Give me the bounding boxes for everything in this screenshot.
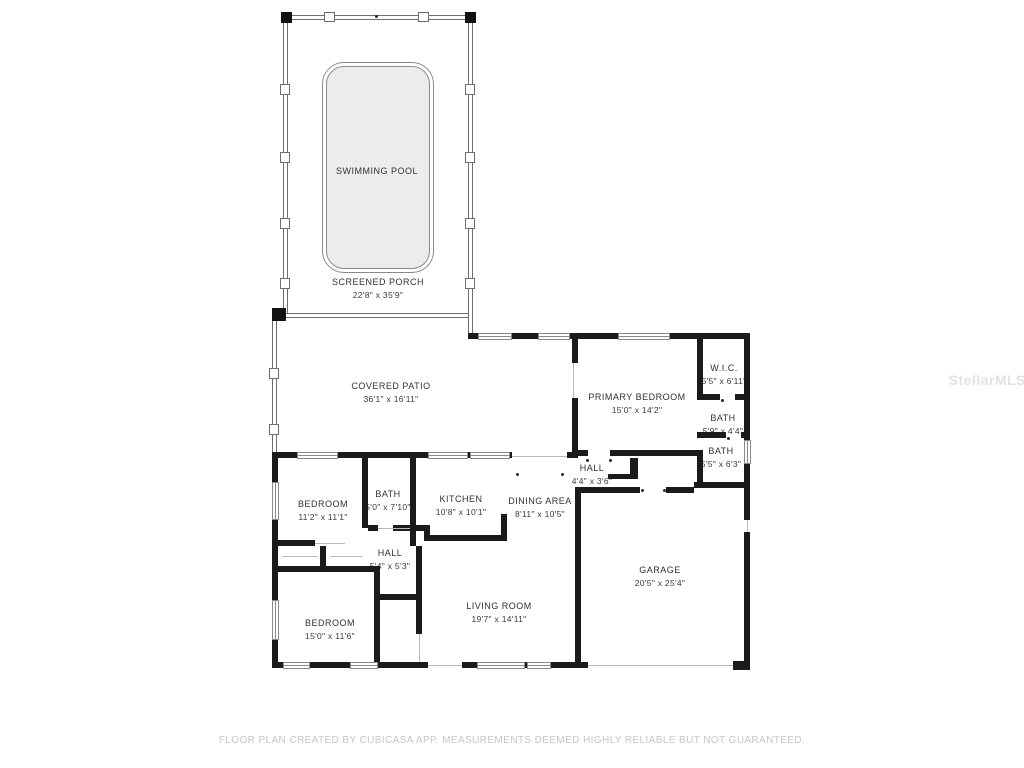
room-label-covered-patio: COVERED PATIO 36'1" x 16'11" — [321, 381, 461, 404]
screen-post — [269, 368, 279, 379]
wall — [374, 566, 380, 668]
wall — [380, 594, 422, 600]
screen-post — [280, 278, 290, 289]
window — [350, 662, 378, 669]
porch-screen-wall-top — [283, 15, 473, 20]
patio-slider-door — [573, 363, 574, 398]
dining-patio-opening — [512, 456, 567, 457]
corner-post — [465, 12, 476, 23]
screen-post — [280, 218, 290, 229]
patio-screen-wall-left — [272, 318, 277, 458]
wall — [741, 432, 750, 438]
wall — [572, 450, 588, 456]
corner-post — [281, 12, 292, 23]
mls-watermark: StellarMLS — [949, 372, 1024, 388]
closet-door — [282, 556, 318, 557]
closet-door — [419, 634, 420, 662]
room-label-screened-porch: SCREENED PORCH 22'8" x 35'9" — [308, 277, 448, 300]
marker-dot — [516, 473, 519, 476]
wall — [362, 458, 368, 528]
window — [272, 482, 279, 520]
wall — [501, 514, 507, 541]
room-label-living-room: LIVING ROOM 19'7" x 14'11" — [429, 601, 569, 624]
window — [428, 452, 468, 459]
floor-plan-canvas: SWIMMING POOL SCREENED PORCH 22'8" x 35'… — [0, 0, 1024, 768]
wall — [272, 540, 315, 546]
wall — [272, 566, 374, 572]
window — [527, 662, 551, 669]
screen-post — [465, 218, 475, 229]
porch-screen-wall-bottom — [283, 313, 468, 318]
window — [297, 452, 338, 459]
room-label-wic: W.I.C. 5'5" x 6'11" — [654, 363, 794, 386]
porch-screen-wall-left — [283, 15, 288, 318]
wall — [735, 394, 750, 400]
marker-dot — [721, 399, 724, 402]
room-label-hall-right: HALL 4'4" x 3'6" — [522, 463, 662, 486]
room-label-garage: GARAGE 20'5" x 25'4" — [590, 565, 730, 588]
marker-dot — [586, 459, 589, 462]
window — [618, 333, 670, 340]
marker-dot — [663, 489, 666, 492]
room-label-swimming-pool: SWIMMING POOL — [307, 166, 447, 176]
wall — [697, 432, 726, 438]
wall — [424, 535, 507, 541]
screen-post — [269, 424, 279, 435]
screen-post — [418, 12, 429, 22]
window — [744, 440, 751, 464]
wall — [610, 450, 703, 456]
wall — [572, 398, 578, 456]
wall — [697, 394, 720, 400]
corner-post — [272, 308, 286, 321]
room-label-dining-area: DINING AREA 8'11" x 10'5" — [470, 496, 610, 519]
wall — [744, 333, 750, 520]
bath-door — [378, 528, 410, 529]
window — [272, 600, 279, 640]
room-label-primary-bedroom: PRIMARY BEDROOM 15'0" x 14'2" — [567, 392, 707, 415]
marker-dot — [727, 437, 730, 440]
wall — [368, 525, 378, 531]
wall — [697, 339, 703, 399]
wall — [744, 532, 750, 670]
garage-side-door — [747, 520, 748, 532]
wall — [733, 661, 750, 670]
front-door — [428, 665, 462, 666]
wall — [575, 487, 581, 668]
marker-dot — [561, 473, 564, 476]
window — [538, 333, 570, 340]
window — [478, 333, 512, 340]
marker-dot — [609, 459, 612, 462]
screen-post — [465, 152, 475, 163]
screen-post — [280, 152, 290, 163]
wall — [608, 474, 638, 479]
wall — [416, 546, 422, 634]
garage-door — [588, 665, 733, 666]
wall — [572, 339, 578, 363]
window — [283, 662, 310, 669]
wall — [666, 487, 694, 493]
screen-post — [280, 84, 290, 95]
marker-dot — [375, 15, 378, 18]
wall — [694, 482, 750, 488]
window — [477, 662, 525, 669]
bedroom-door — [315, 543, 345, 544]
screen-post — [465, 278, 475, 289]
closet-door — [330, 556, 362, 557]
screen-post — [324, 12, 335, 22]
wall — [575, 487, 640, 493]
screen-post — [465, 84, 475, 95]
marker-dot — [641, 489, 644, 492]
window — [470, 452, 510, 459]
footer-disclaimer: FLOOR PLAN CREATED BY CUBICASA APP. MEAS… — [0, 735, 1024, 746]
wall — [410, 458, 416, 546]
